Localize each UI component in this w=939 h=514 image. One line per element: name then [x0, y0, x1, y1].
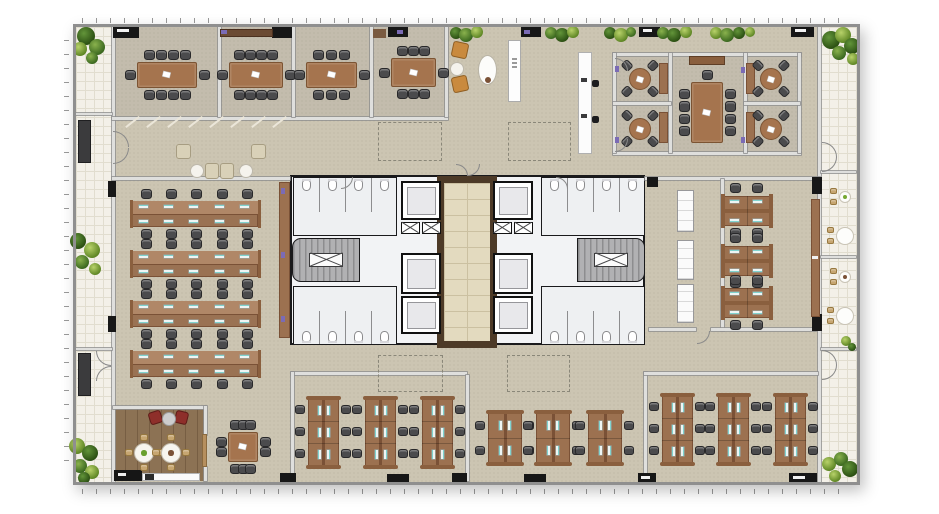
- grid-tick: [754, 489, 755, 494]
- grid-tick: [684, 18, 685, 23]
- grid-tick: [320, 18, 321, 23]
- grid-tick: [586, 489, 587, 494]
- grid-tick: [334, 489, 335, 494]
- grid-tick: [824, 18, 825, 23]
- grid-tick: [656, 489, 657, 494]
- grid-tick: [782, 18, 783, 23]
- grid-tick: [768, 18, 769, 23]
- grid-tick: [292, 489, 293, 494]
- grid-tick: [124, 18, 125, 23]
- grid-tick: [152, 18, 153, 23]
- grid-tick: [782, 489, 783, 494]
- grid-tick: [614, 489, 615, 494]
- grid-tick: [712, 18, 713, 23]
- grid-tick: [64, 40, 69, 41]
- grid-tick: [320, 489, 321, 494]
- grid-tick: [810, 489, 811, 494]
- grid-tick: [404, 18, 405, 23]
- grid-tick: [82, 489, 83, 494]
- grid-tick: [628, 18, 629, 23]
- grid-tick: [726, 489, 727, 494]
- grid-tick: [460, 18, 461, 23]
- grid-tick: [446, 18, 447, 23]
- grid-tick: [194, 18, 195, 23]
- grid-tick: [726, 18, 727, 23]
- building-exterior-wall: [73, 24, 860, 485]
- grid-tick: [64, 250, 69, 251]
- grid-tick: [292, 18, 293, 23]
- grid-tick: [432, 18, 433, 23]
- grid-tick: [348, 489, 349, 494]
- grid-tick: [278, 489, 279, 494]
- grid-tick: [502, 18, 503, 23]
- grid-tick: [740, 18, 741, 23]
- grid-tick: [208, 489, 209, 494]
- grid-tick: [124, 489, 125, 494]
- grid-tick: [432, 489, 433, 494]
- grid-tick: [222, 18, 223, 23]
- grid-tick: [572, 489, 573, 494]
- grid-tick: [250, 18, 251, 23]
- grid-tick: [516, 489, 517, 494]
- grid-tick: [64, 320, 69, 321]
- grid-tick: [670, 18, 671, 23]
- grid-tick: [586, 18, 587, 23]
- grid-tick: [180, 489, 181, 494]
- grid-tick: [306, 18, 307, 23]
- grid-tick: [530, 489, 531, 494]
- grid-tick: [390, 489, 391, 494]
- grid-tick: [474, 489, 475, 494]
- grid-tick: [488, 18, 489, 23]
- grid-tick: [404, 489, 405, 494]
- grid-tick: [64, 166, 69, 167]
- grid-tick: [64, 82, 69, 83]
- grid-tick: [64, 110, 69, 111]
- grid-tick: [754, 18, 755, 23]
- grid-tick: [656, 18, 657, 23]
- grid-tick: [474, 18, 475, 23]
- grid-tick: [768, 489, 769, 494]
- grid-tick: [796, 489, 797, 494]
- grid-tick: [82, 18, 83, 23]
- grid-tick: [194, 489, 195, 494]
- grid-tick: [64, 362, 69, 363]
- grid-tick: [698, 18, 699, 23]
- grid-tick: [64, 68, 69, 69]
- grid-tick: [64, 376, 69, 377]
- grid-tick: [166, 489, 167, 494]
- grid-tick: [628, 489, 629, 494]
- grid-tick: [96, 489, 97, 494]
- grid-tick: [838, 18, 839, 23]
- grid-tick: [446, 489, 447, 494]
- grid-tick: [348, 18, 349, 23]
- grid-tick: [530, 18, 531, 23]
- grid-tick: [250, 489, 251, 494]
- grid-tick: [558, 489, 559, 494]
- grid-tick: [600, 18, 601, 23]
- grid-tick: [64, 96, 69, 97]
- grid-tick: [376, 489, 377, 494]
- grid-tick: [64, 208, 69, 209]
- grid-tick: [64, 460, 69, 461]
- grid-tick: [64, 348, 69, 349]
- grid-tick: [64, 54, 69, 55]
- grid-tick: [362, 18, 363, 23]
- grid-tick: [740, 489, 741, 494]
- grid-tick: [64, 180, 69, 181]
- grid-tick: [278, 18, 279, 23]
- grid-tick: [138, 489, 139, 494]
- grid-tick: [138, 18, 139, 23]
- grid-tick: [64, 194, 69, 195]
- grid-tick: [64, 334, 69, 335]
- grid-tick: [180, 18, 181, 23]
- grid-tick: [390, 18, 391, 23]
- grid-tick: [572, 18, 573, 23]
- grid-tick: [64, 264, 69, 265]
- grid-tick: [64, 138, 69, 139]
- grid-tick: [838, 489, 839, 494]
- grid-tick: [306, 489, 307, 494]
- grid-tick: [362, 489, 363, 494]
- grid-tick: [334, 18, 335, 23]
- grid-tick: [64, 278, 69, 279]
- grid-tick: [64, 152, 69, 153]
- grid-tick: [810, 18, 811, 23]
- grid-tick: [264, 489, 265, 494]
- grid-tick: [544, 489, 545, 494]
- grid-tick: [64, 222, 69, 223]
- grid-tick: [96, 18, 97, 23]
- grid-tick: [64, 418, 69, 419]
- grid-tick: [544, 18, 545, 23]
- grid-tick: [64, 306, 69, 307]
- grid-tick: [264, 18, 265, 23]
- grid-tick: [460, 489, 461, 494]
- grid-tick: [642, 18, 643, 23]
- grid-tick: [236, 489, 237, 494]
- grid-tick: [684, 489, 685, 494]
- grid-tick: [796, 18, 797, 23]
- grid-tick: [418, 18, 419, 23]
- grid-tick: [824, 489, 825, 494]
- grid-tick: [64, 432, 69, 433]
- grid-tick: [152, 489, 153, 494]
- grid-tick: [376, 18, 377, 23]
- floor-plan: [0, 0, 939, 514]
- grid-tick: [64, 390, 69, 391]
- grid-tick: [698, 489, 699, 494]
- grid-tick: [488, 489, 489, 494]
- grid-tick: [712, 489, 713, 494]
- grid-tick: [516, 18, 517, 23]
- grid-tick: [110, 489, 111, 494]
- grid-tick: [418, 489, 419, 494]
- grid-tick: [642, 489, 643, 494]
- grid-tick: [64, 124, 69, 125]
- grid-tick: [208, 18, 209, 23]
- grid-tick: [64, 292, 69, 293]
- grid-tick: [600, 489, 601, 494]
- grid-tick: [614, 18, 615, 23]
- grid-tick: [222, 489, 223, 494]
- grid-tick: [64, 404, 69, 405]
- grid-tick: [166, 18, 167, 23]
- grid-tick: [502, 489, 503, 494]
- grid-tick: [64, 236, 69, 237]
- grid-tick: [670, 489, 671, 494]
- grid-tick: [558, 18, 559, 23]
- grid-tick: [236, 18, 237, 23]
- grid-tick: [110, 18, 111, 23]
